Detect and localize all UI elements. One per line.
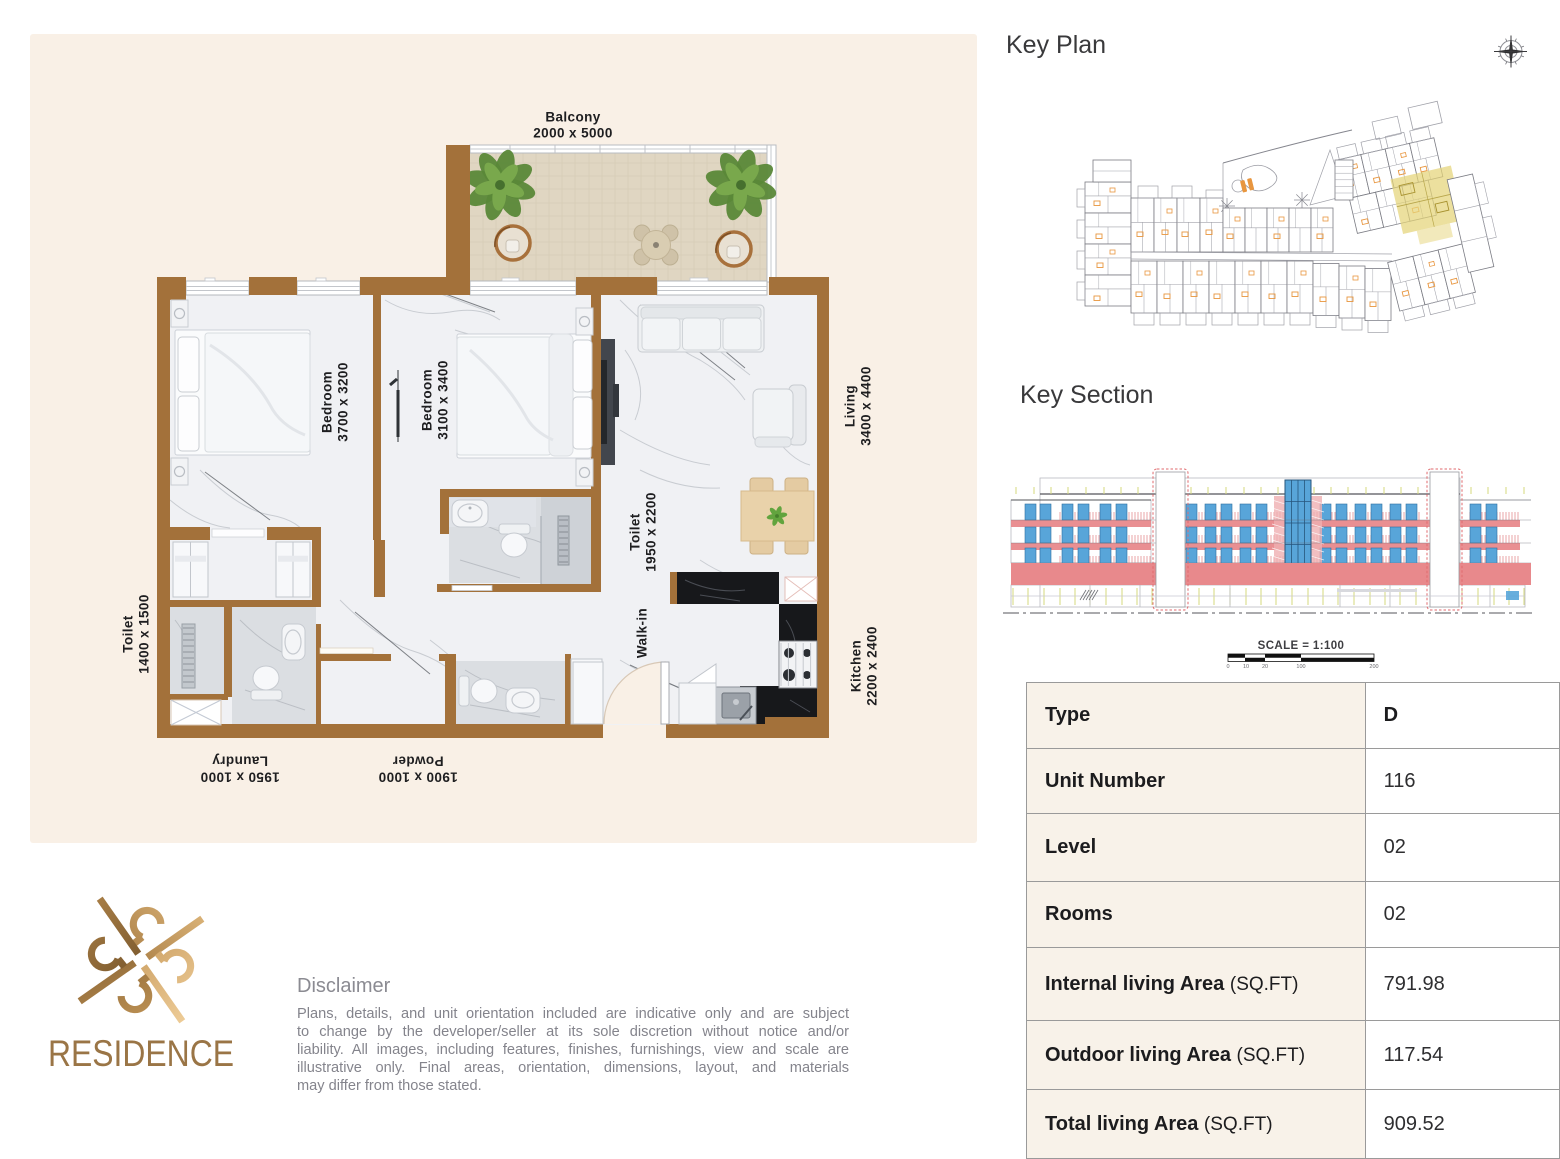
svg-text:Toilet: Toilet <box>628 513 643 551</box>
svg-text:Balcony: Balcony <box>545 110 600 125</box>
svg-text:SCALE = 1:100: SCALE = 1:100 <box>1258 640 1345 652</box>
svg-text:3400 x 4400: 3400 x 4400 <box>859 366 874 445</box>
svg-text:Living: Living <box>843 385 858 427</box>
svg-text:Walk-in: Walk-in <box>635 608 650 658</box>
svg-text:Bedroom: Bedroom <box>420 369 435 431</box>
svg-text:3100 x 3400: 3100 x 3400 <box>436 360 451 439</box>
svg-text:1950 x 1000: 1950 x 1000 <box>200 769 279 784</box>
svg-text:Powder: Powder <box>392 753 444 768</box>
svg-text:1950 x 2200: 1950 x 2200 <box>644 492 659 571</box>
svg-text:Laundry: Laundry <box>212 753 268 768</box>
svg-text:1900 x 1000: 1900 x 1000 <box>378 769 457 784</box>
svg-text:Kitchen: Kitchen <box>849 640 864 692</box>
svg-text:Toilet: Toilet <box>121 615 136 653</box>
svg-text:1400 x 1500: 1400 x 1500 <box>137 594 152 673</box>
svg-text:2000 x 5000: 2000 x 5000 <box>533 126 612 141</box>
svg-text:10: 10 <box>1243 664 1249 670</box>
svg-text:200: 200 <box>1369 664 1378 670</box>
svg-text:0: 0 <box>1226 664 1229 670</box>
svg-text:3700 x 3200: 3700 x 3200 <box>336 362 351 441</box>
svg-text:Bedroom: Bedroom <box>320 371 335 433</box>
svg-text:20: 20 <box>1262 664 1268 670</box>
svg-text:2200 x 2400: 2200 x 2400 <box>865 626 880 705</box>
svg-text:100: 100 <box>1296 664 1305 670</box>
svg-text:RESIDENCE: RESIDENCE <box>48 1033 234 1074</box>
